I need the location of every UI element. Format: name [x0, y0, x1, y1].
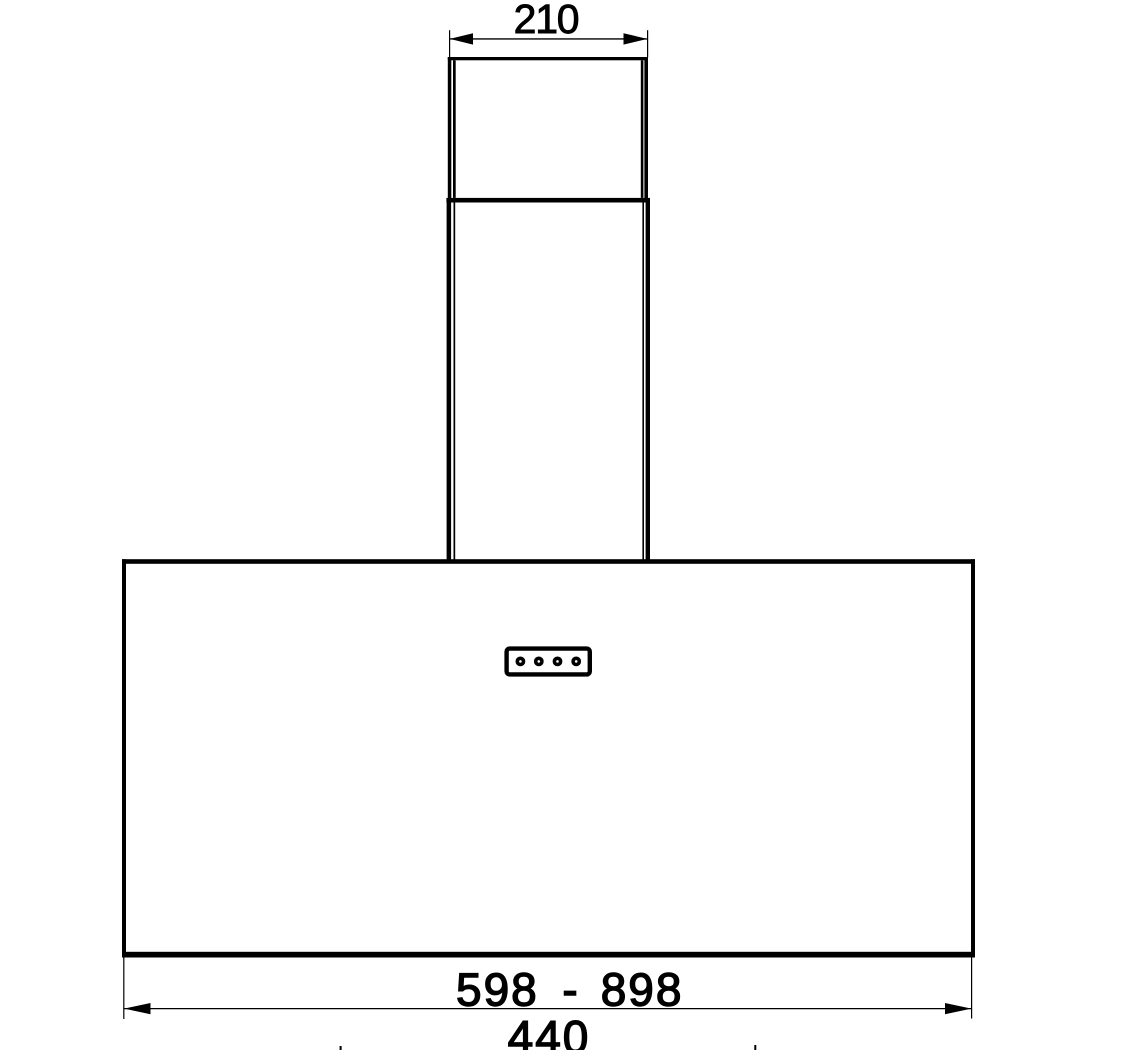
svg-text:440: 440	[508, 1011, 591, 1050]
svg-text:210: 210	[514, 0, 579, 42]
svg-text:598: 598	[456, 963, 539, 1015]
svg-text:898: 898	[601, 963, 684, 1015]
svg-text:-: -	[562, 963, 577, 1015]
